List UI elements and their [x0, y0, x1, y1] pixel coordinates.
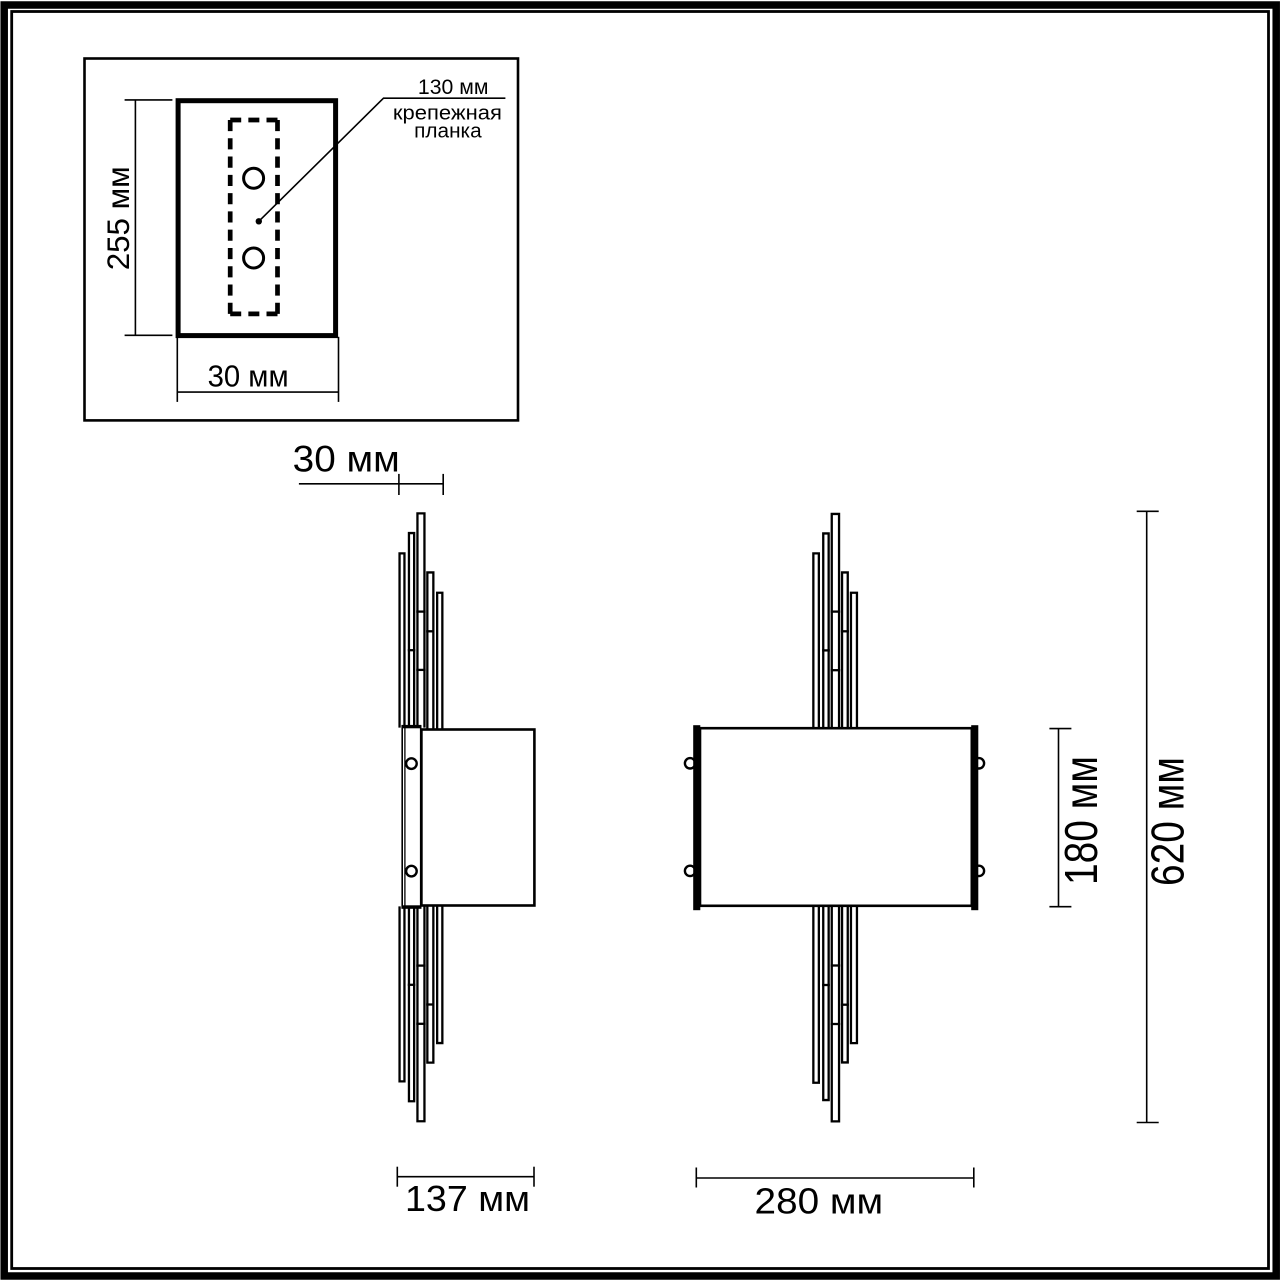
- svg-text:30 мм: 30 мм: [293, 439, 400, 480]
- svg-text:280 мм: 280 мм: [755, 1181, 884, 1222]
- svg-text:30 мм: 30 мм: [208, 359, 289, 394]
- svg-text:620 мм: 620 мм: [1141, 757, 1193, 886]
- svg-text:планка: планка: [414, 120, 482, 142]
- svg-text:180 мм: 180 мм: [1055, 756, 1107, 885]
- svg-text:130 мм: 130 мм: [418, 76, 489, 99]
- svg-text:255 мм: 255 мм: [100, 166, 136, 270]
- svg-text:137 мм: 137 мм: [405, 1178, 530, 1219]
